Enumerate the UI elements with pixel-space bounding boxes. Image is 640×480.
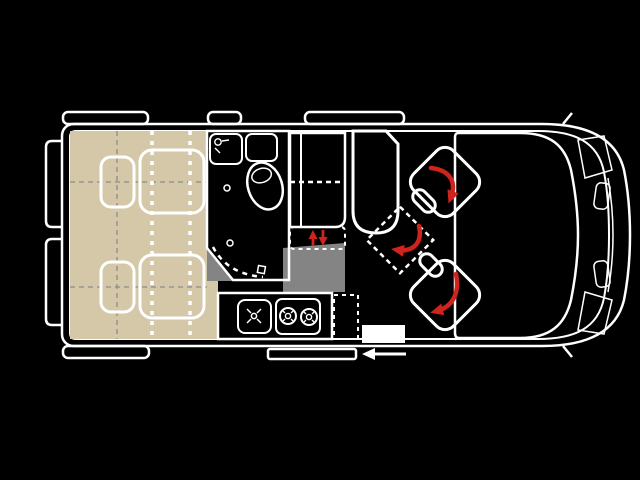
bed-platform bbox=[70, 131, 218, 339]
entry-step bbox=[362, 325, 405, 343]
entry-floor-patch bbox=[283, 243, 345, 292]
bed-area bbox=[70, 131, 218, 339]
floorplan-stage bbox=[0, 0, 640, 480]
campervan-floorplan bbox=[0, 0, 640, 480]
